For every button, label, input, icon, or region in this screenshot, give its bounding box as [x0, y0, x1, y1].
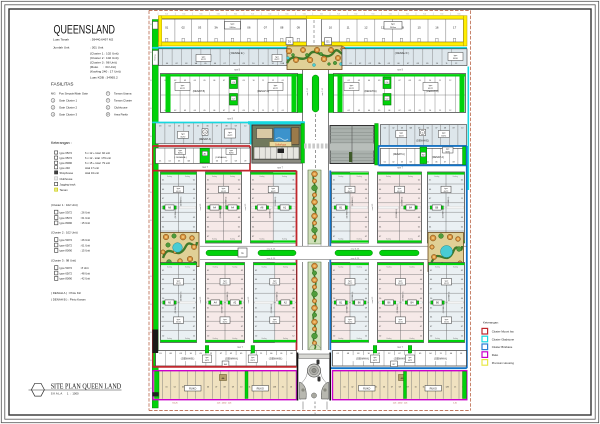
svg-text:9.0: 9.0 — [150, 332, 152, 334]
svg-text:9.00: 9.00 — [234, 14, 237, 16]
svg-text:03: 03 — [178, 161, 180, 163]
svg-text:07: 07 — [255, 289, 257, 291]
svg-text:65/72: 65/72 — [176, 283, 181, 285]
svg-text:type: type — [271, 187, 274, 190]
svg-text:Premium Housing: Premium Housing — [492, 361, 515, 365]
svg-text:type: type — [205, 356, 208, 359]
svg-text:01: 01 — [162, 270, 164, 272]
svg-text:65/72: 65/72 — [273, 88, 278, 90]
svg-text:02: 02 — [193, 226, 195, 228]
svg-text:15: 15 — [417, 26, 421, 30]
svg-text:07: 07 — [430, 289, 432, 291]
svg-text:Area Parkir: Area Parkir — [114, 112, 128, 116]
svg-text:Taman Utama: Taman Utama — [114, 91, 132, 95]
svg-text:Taman Cluster: Taman Cluster — [114, 98, 132, 102]
svg-text:01: 01 — [282, 110, 284, 112]
svg-text:row 7.10: row 7.10 — [307, 87, 309, 96]
svg-text:04: 04 — [241, 298, 243, 300]
svg-text:(DENAH B): (DENAH B) — [174, 208, 177, 218]
svg-text:65/72: 65/72 — [348, 283, 353, 285]
svg-text:row 8.5: row 8.5 — [372, 203, 374, 210]
svg-text:10: 10 — [415, 387, 417, 389]
svg-text:9.0: 9.0 — [150, 304, 152, 306]
svg-text:10: 10 — [429, 110, 431, 112]
svg-text:07: 07 — [379, 236, 381, 238]
svg-text:65/72: 65/72 — [223, 322, 228, 324]
svg-text:type: type — [348, 279, 351, 282]
svg-text:01: 01 — [207, 270, 209, 272]
svg-text:02: 02 — [365, 226, 367, 228]
svg-text:9.00: 9.00 — [303, 14, 306, 16]
svg-text:Kavling: Kavling — [167, 176, 172, 178]
svg-text:07: 07 — [418, 236, 420, 238]
svg-text:07: 07 — [193, 326, 195, 328]
svg-text:02: 02 — [351, 387, 353, 389]
svg-text:04: 04 — [420, 298, 422, 300]
svg-text:10: 10 — [207, 298, 209, 300]
svg-text:Kavling: Kavling — [212, 239, 217, 241]
svg-text:( DENAH A ): ( DENAH A ) — [215, 156, 227, 159]
svg-text:(DENAH A): (DENAH A) — [441, 208, 444, 218]
svg-text:type: type — [251, 356, 254, 359]
svg-text:08: 08 — [409, 110, 411, 112]
svg-text:65/72: 65/72 — [275, 59, 280, 61]
svg-text:C: C — [107, 106, 109, 109]
svg-text:(Cluster 3 : 98 Unit): (Cluster 3 : 98 Unit) — [90, 61, 117, 65]
svg-text:04: 04 — [194, 110, 196, 112]
svg-text:01: 01 — [430, 270, 432, 272]
svg-text:row 7: row 7 — [237, 346, 244, 349]
svg-text:(DENAH B): (DENAH B) — [179, 291, 182, 301]
svg-text:: 8 Unit: : 8 Unit — [80, 266, 89, 270]
svg-text:Ruko: Ruko — [492, 353, 499, 357]
svg-text:Cluster Gladstone: Cluster Gladstone — [492, 337, 515, 341]
svg-text:(DENAH A): (DENAH A) — [224, 196, 227, 206]
svg-text:06: 06 — [216, 161, 218, 163]
svg-text:6 x 12 + total 92 unit: 6 x 12 + total 92 unit — [85, 151, 110, 155]
svg-text:65/72: 65/72 — [444, 191, 449, 193]
svg-text:( DENAH E ): ( DENAH E ) — [230, 51, 245, 55]
svg-text:Kavling: Kavling — [434, 176, 439, 178]
svg-text:type: type — [399, 318, 402, 321]
svg-text:(DENAH B): (DENAH B) — [193, 90, 205, 93]
svg-text:type 53/72: type 53/72 — [60, 238, 73, 242]
svg-text:01: 01 — [365, 270, 367, 272]
svg-text:(Cluster 3 : 98 Unit): (Cluster 3 : 98 Unit) — [51, 259, 76, 263]
svg-text:(DENAH A): (DENAH A) — [199, 138, 211, 141]
svg-text:total 34 unit: total 34 unit — [85, 171, 99, 175]
svg-text:09: 09 — [365, 217, 367, 219]
svg-text:type 53/72: type 53/72 — [60, 210, 73, 214]
svg-text:09: 09 — [193, 217, 195, 219]
svg-text:row 8.5: row 8.5 — [200, 296, 202, 303]
svg-text:type 65/72: type 65/72 — [60, 151, 73, 155]
svg-text:(DENAH B): (DENAH B) — [401, 291, 404, 301]
svg-text:12: 12 — [241, 335, 243, 337]
svg-text:04: 04 — [252, 226, 254, 228]
svg-text:11: 11 — [262, 110, 264, 112]
svg-text:11: 11 — [347, 26, 350, 30]
svg-text:type: type — [275, 55, 279, 58]
svg-text:type: type — [177, 279, 180, 282]
svg-text:: 48 Unit: : 48 Unit — [80, 271, 90, 275]
svg-text:09: 09 — [193, 307, 195, 309]
svg-text:04: 04 — [429, 226, 431, 228]
svg-text:03: 03 — [184, 80, 186, 82]
svg-text:9.0: 9.0 — [150, 108, 152, 110]
svg-text:02: 02 — [420, 317, 422, 319]
svg-text:09: 09 — [453, 127, 455, 129]
svg-text:04: 04 — [430, 279, 432, 281]
svg-text:65/72: 65/72 — [228, 135, 233, 137]
svg-text:: 61 Unit: : 61 Unit — [80, 216, 90, 220]
svg-text:01: 01 — [333, 217, 335, 219]
svg-text:10: 10 — [244, 126, 246, 128]
svg-text:10: 10 — [207, 335, 209, 337]
svg-text:total 17 unit: total 17 unit — [85, 166, 99, 170]
svg-text:04: 04 — [207, 279, 209, 281]
svg-text:12: 12 — [449, 110, 451, 112]
svg-text:10: 10 — [252, 80, 254, 82]
svg-text:65/72: 65/72 — [271, 191, 276, 193]
svg-text:01: 01 — [365, 179, 367, 181]
svg-text:type: type — [445, 318, 448, 321]
svg-text:01: 01 — [255, 270, 257, 272]
svg-text:Kavling: Kavling — [435, 266, 440, 268]
svg-text:11: 11 — [461, 198, 463, 200]
svg-text:SITE PLAN QUEEN LAND: SITE PLAN QUEEN LAND — [51, 382, 122, 391]
svg-text:type: type — [454, 54, 458, 57]
svg-text:Kavling: Kavling — [213, 338, 218, 340]
svg-text:01: 01 — [252, 179, 254, 181]
svg-text:03: 03 — [182, 387, 184, 389]
svg-text:01: 01 — [429, 179, 431, 181]
svg-text:09: 09 — [419, 110, 421, 112]
svg-text:9.0: 9.0 — [150, 276, 152, 278]
svg-text:row 5.25: row 5.25 — [351, 247, 360, 250]
svg-text:type 53/72: type 53/72 — [60, 266, 73, 270]
svg-text:10: 10 — [255, 335, 257, 337]
svg-text:07: 07 — [420, 326, 422, 328]
svg-text:11: 11 — [461, 289, 463, 291]
svg-text:: 26 Unit: : 26 Unit — [80, 238, 90, 242]
svg-text:9.0: 9.0 — [150, 248, 152, 250]
svg-text:10: 10 — [461, 127, 463, 129]
svg-text:Clubhouse: Clubhouse — [60, 177, 73, 181]
svg-text:02: 02 — [292, 226, 294, 228]
svg-text:Gate Cluster 1: Gate Cluster 1 — [59, 98, 77, 102]
svg-text:06: 06 — [238, 189, 240, 191]
svg-text:9.0: 9.0 — [150, 192, 152, 194]
svg-text:Kavling: Kavling — [338, 266, 343, 268]
svg-text:9.00: 9.00 — [182, 14, 185, 16]
svg-text:07: 07 — [223, 110, 225, 112]
svg-text:3A: 3A — [214, 26, 218, 30]
svg-text:65/72: 65/72 — [441, 136, 446, 138]
svg-text:04: 04 — [207, 226, 209, 228]
svg-text:10: 10 — [255, 298, 257, 300]
svg-text:9.0: 9.0 — [150, 52, 152, 54]
svg-text:( DENAH A ): ( DENAH A ) — [434, 358, 447, 361]
svg-text:06: 06 — [427, 127, 429, 129]
svg-text:Kavling: Kavling — [357, 176, 362, 178]
svg-text:6 x 15 + total 79 unit: 6 x 15 + total 79 unit — [85, 161, 110, 165]
svg-text:01: 01 — [207, 307, 209, 309]
svg-text:10: 10 — [329, 26, 333, 30]
svg-text:09: 09 — [232, 387, 234, 389]
svg-text:07: 07 — [430, 326, 432, 328]
svg-text:(DENAH A): (DENAH A) — [220, 303, 223, 313]
svg-text:06: 06 — [193, 279, 195, 281]
svg-text:06: 06 — [193, 189, 195, 191]
svg-text:type: type — [229, 149, 232, 152]
svg-text:04: 04 — [194, 80, 196, 82]
svg-text:type: type — [350, 84, 354, 87]
svg-text:04: 04 — [255, 279, 257, 281]
svg-text:11: 11 — [193, 198, 195, 200]
svg-text:09: 09 — [297, 26, 301, 30]
svg-text:09: 09 — [461, 217, 463, 219]
svg-text:01: 01 — [165, 26, 169, 30]
svg-text:07: 07 — [264, 26, 268, 30]
svg-text:9.00: 9.00 — [372, 14, 375, 16]
svg-text:01: 01 — [241, 270, 243, 272]
svg-text:6 x 12 - total 179 unit: 6 x 12 - total 179 unit — [85, 156, 111, 160]
svg-text:09: 09 — [461, 307, 463, 309]
svg-text:04: 04 — [162, 226, 164, 228]
svg-text:03: 03 — [178, 126, 180, 128]
svg-text:Kavling: Kavling — [408, 239, 413, 241]
svg-text:04: 04 — [252, 189, 254, 191]
svg-text:65/72: 65/72 — [223, 283, 228, 285]
svg-text:04: 04 — [368, 80, 370, 82]
svg-text:03: 03 — [159, 126, 161, 128]
svg-text:16: 16 — [435, 26, 439, 30]
svg-text:Kavling: Kavling — [232, 266, 237, 268]
svg-text:06: 06 — [241, 279, 243, 281]
svg-text:Kavling: Kavling — [259, 176, 264, 178]
svg-text:06: 06 — [461, 279, 463, 281]
svg-text:row 8: row 8 — [227, 117, 234, 120]
svg-text:row 8.5: row 8.5 — [372, 296, 374, 303]
svg-text:06: 06 — [388, 110, 390, 112]
svg-text:type: type — [348, 318, 351, 321]
svg-text:(DENAH A): (DENAH A) — [274, 196, 277, 206]
svg-text:17: 17 — [453, 26, 457, 30]
svg-text:(DENAH A): (DENAH A) — [269, 208, 272, 218]
svg-text:07: 07 — [379, 326, 381, 328]
svg-text:type: type — [444, 187, 447, 190]
svg-text:9.00: 9.00 — [354, 14, 357, 16]
svg-text:row 7: row 7 — [202, 166, 209, 169]
svg-text:(DENAH A): (DENAH A) — [364, 90, 376, 93]
svg-text:row 8: row 8 — [397, 68, 404, 71]
svg-text:Kavling: Kavling — [357, 266, 362, 268]
svg-text:RUKO: RUKO — [363, 388, 370, 391]
svg-text:1.25 24.50 1.25: 1.25 24.50 1.25 — [393, 403, 408, 405]
svg-text:11: 11 — [439, 110, 441, 112]
svg-text:( DENAH F ): ( DENAH F ) — [395, 51, 410, 55]
svg-text:02: 02 — [461, 317, 463, 319]
svg-text:type: type — [181, 84, 185, 87]
svg-text:QUEENSLAND: QUEENSLAND — [54, 23, 116, 37]
svg-text:65/72: 65/72 — [397, 191, 402, 193]
svg-text:01: 01 — [418, 179, 420, 181]
svg-text:04: 04 — [379, 226, 381, 228]
svg-text:type: type — [446, 148, 449, 151]
svg-text:11: 11 — [241, 289, 243, 291]
svg-text:01: 01 — [379, 270, 381, 272]
svg-text:9.0: 9.0 — [150, 24, 152, 26]
svg-text:07: 07 — [333, 198, 335, 200]
svg-text:(DENAH A): (DENAH A) — [393, 153, 405, 156]
svg-text:06: 06 — [435, 161, 437, 163]
svg-text:07: 07 — [398, 80, 400, 82]
svg-text:15: 15 — [454, 387, 456, 389]
svg-text:01: 01 — [193, 179, 195, 181]
svg-text:04: 04 — [333, 189, 335, 191]
svg-text:05: 05 — [203, 110, 205, 112]
svg-text:07: 07 — [292, 236, 294, 238]
svg-text:type: type — [181, 132, 185, 135]
svg-text:05: 05 — [378, 80, 380, 82]
svg-text:07: 07 — [379, 289, 381, 291]
svg-text:Kavling: Kavling — [387, 338, 392, 340]
svg-text:9.00: 9.00 — [406, 14, 409, 16]
svg-text:08: 08 — [409, 80, 411, 82]
svg-text:(DENAH A): (DENAH A) — [432, 156, 444, 159]
svg-text:08: 08 — [233, 110, 235, 112]
svg-text:type: type — [223, 318, 226, 321]
svg-text:(DENAH A): (DENAH A) — [219, 208, 222, 218]
svg-text:07: 07 — [333, 326, 335, 328]
svg-text:Kavling: Kavling — [282, 176, 287, 178]
svg-text:(DENAH A): (DENAH A) — [400, 196, 403, 206]
svg-text:type: type — [223, 279, 226, 282]
svg-text:Luas KDB : 34965.2: Luas KDB : 34965.2 — [90, 75, 118, 79]
svg-text:65/72: 65/72 — [408, 360, 412, 362]
svg-text:04: 04 — [333, 317, 335, 319]
svg-text:S K A L A 1 : 1000: S K A L A 1 : 1000 — [51, 391, 79, 395]
svg-text:Kavling: Kavling — [410, 266, 415, 268]
svg-text:row 8: row 8 — [234, 68, 241, 71]
svg-text:(DENAH B): (DENAH B) — [351, 196, 354, 206]
svg-text:01: 01 — [420, 270, 422, 272]
svg-text:07: 07 — [162, 326, 164, 328]
svg-text:01: 01 — [238, 179, 240, 181]
svg-text:Kavling: Kavling — [410, 338, 415, 340]
svg-text:Kavling: Kavling — [408, 176, 413, 178]
svg-text:06: 06 — [213, 110, 215, 112]
svg-text:07: 07 — [225, 161, 227, 163]
svg-text:type: type — [408, 356, 411, 359]
svg-text:type: type — [228, 131, 232, 134]
svg-text:9.0: 9.0 — [150, 164, 152, 166]
svg-text:Jogging track: Jogging track — [60, 183, 77, 187]
svg-text:Kavling: Kavling — [453, 266, 458, 268]
svg-text:02: 02 — [174, 387, 176, 389]
svg-text:type: type — [373, 356, 376, 359]
svg-text:09: 09 — [418, 217, 420, 219]
svg-text:type 80/90: type 80/90 — [60, 221, 73, 225]
svg-text:12: 12 — [365, 335, 367, 337]
svg-text:65/72: 65/72 — [180, 88, 185, 90]
svg-text:( DENAH B ): ( DENAH B ) — [181, 358, 195, 361]
svg-text:Kavling: Kavling — [259, 239, 264, 241]
svg-text:01: 01 — [162, 307, 164, 309]
svg-text:11: 11 — [418, 198, 420, 200]
svg-text:Kavling: Kavling — [167, 266, 172, 268]
svg-text:08: 08 — [444, 127, 446, 129]
svg-text:65/72: 65/72 — [176, 191, 181, 193]
svg-text:07: 07 — [223, 80, 225, 82]
svg-text:9.00: 9.00 — [337, 14, 340, 16]
svg-text:: 15 Unit: : 15 Unit — [80, 249, 90, 253]
svg-text:07: 07 — [444, 161, 446, 163]
svg-text:9.0: 9.0 — [150, 220, 152, 222]
svg-text:02: 02 — [392, 127, 394, 129]
svg-text:65/72: 65/72 — [373, 360, 377, 362]
svg-text:9.00: 9.00 — [217, 14, 220, 16]
svg-text:08: 08 — [453, 161, 455, 163]
svg-text:09: 09 — [243, 110, 245, 112]
svg-text:07: 07 — [207, 236, 209, 238]
svg-text:10: 10 — [240, 387, 242, 389]
svg-text:9.00: 9.00 — [440, 14, 443, 16]
svg-text:10: 10 — [430, 298, 432, 300]
svg-text:: 26 Unit: : 26 Unit — [80, 210, 90, 214]
svg-text:row 7: row 7 — [277, 166, 284, 169]
svg-text:09: 09 — [244, 161, 246, 163]
svg-text:65/72: 65/72 — [251, 360, 255, 362]
svg-text:02: 02 — [169, 126, 171, 128]
svg-text:07: 07 — [391, 387, 393, 389]
svg-text:03: 03 — [401, 127, 403, 129]
svg-text:01: 01 — [343, 387, 345, 389]
svg-text:(DENAH A): (DENAH A) — [442, 303, 445, 313]
svg-text:9.00: 9.00 — [458, 14, 461, 16]
svg-text:02: 02 — [418, 226, 420, 228]
svg-text:10: 10 — [162, 335, 164, 337]
svg-text:Kavling: Kavling — [453, 176, 458, 178]
svg-text:04: 04 — [365, 298, 367, 300]
svg-text:09: 09 — [235, 126, 237, 128]
svg-text:type 80/90: type 80/90 — [60, 277, 73, 281]
svg-text:07: 07 — [461, 326, 463, 328]
svg-text:: 15 Unit: : 15 Unit — [80, 221, 90, 225]
svg-text:08: 08 — [224, 387, 226, 389]
svg-text:09: 09 — [243, 80, 245, 82]
svg-text:RUKO: RUKO — [430, 388, 437, 391]
svg-text:SofiaAqua: SofiaAqua — [275, 143, 287, 146]
svg-text:row 8.5: row 8.5 — [248, 296, 250, 303]
svg-text:: 61 Unit: : 61 Unit — [80, 243, 90, 247]
svg-text:row 7.10: row 7.10 — [322, 87, 324, 96]
svg-text:04: 04 — [333, 279, 335, 281]
svg-text:1.25: 1.25 — [453, 403, 457, 405]
svg-text:(DENAH A): (DENAH A) — [447, 291, 450, 301]
svg-text:(DENAH B): (DENAH B) — [174, 303, 177, 313]
svg-text:07: 07 — [162, 198, 164, 200]
svg-text:type 65/72: type 65/72 — [60, 271, 73, 275]
svg-text:02: 02 — [169, 161, 171, 163]
svg-text:04: 04 — [207, 317, 209, 319]
svg-text:Kavling: Kavling — [435, 338, 440, 340]
svg-text:07: 07 — [238, 236, 240, 238]
svg-text:Kavling: Kavling — [357, 338, 362, 340]
svg-text:04: 04 — [162, 189, 164, 191]
svg-text:( DENAH B ) : Pintu Kanan: ( DENAH B ) : Pintu Kanan — [51, 298, 86, 302]
